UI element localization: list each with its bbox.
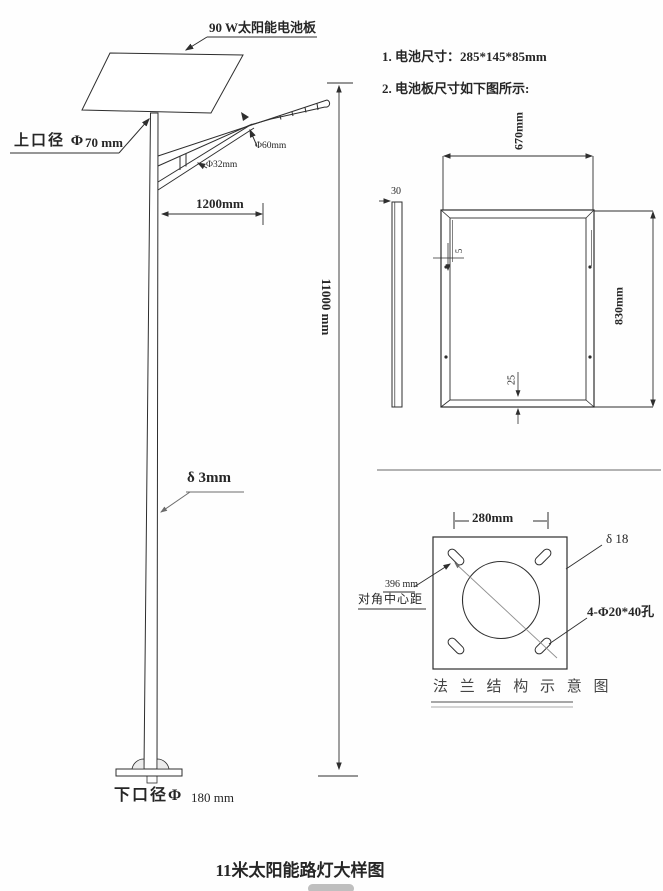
flange-caption: 法 兰 结 构 示 意 图 [433, 679, 613, 696]
flange-detail [358, 512, 602, 707]
panel-callout-leader [186, 37, 317, 50]
dim-11000 [318, 83, 358, 776]
wall-leader [161, 492, 244, 512]
caption-rules [431, 702, 573, 707]
flange-diag-label: 对角中心距 [358, 593, 423, 606]
top-dia-value: 70 mm [85, 136, 123, 150]
flange-thickness-label: δ 18 [606, 532, 628, 546]
panel-callout-label: 90 W太阳能电池板 [209, 21, 316, 35]
pole [144, 113, 158, 769]
drawing-linework [0, 0, 663, 891]
bottom-dia-label: 下口径Φ [114, 787, 183, 805]
panel-lip-dim: 5 [455, 249, 465, 254]
panel-side-view [379, 201, 402, 407]
panel-height-dim: 830mm [612, 287, 625, 325]
flange-holes-label: 4-Φ20*40孔 [587, 605, 654, 619]
panel-thickness-dim: 30 [391, 186, 401, 197]
solar-streetlight-drawing: 90 W太阳能电池板 上口径 Φ 70 mm Φ60mm Φ32mm 1200m… [0, 0, 663, 891]
arm-brace [158, 124, 254, 190]
panel-front-view [441, 210, 594, 407]
note-panel-size: 2. 电池板尺寸如下图所示: [382, 82, 529, 96]
solar-panel [82, 53, 243, 113]
bottom-dia-value: 180 mm [191, 791, 234, 805]
pole-height-label: 11000 mm [319, 279, 333, 336]
flange-spacing-dim: 280mm [472, 511, 513, 525]
flange-diag-value: 396 mm [385, 579, 418, 590]
arm-dia-label: Φ60mm [255, 141, 286, 151]
panel-bottom-lip-dim: 25 [507, 375, 518, 385]
panel-width-dim: 670mm [512, 112, 525, 150]
note-battery-size: 1. 电池尺寸：285*145*85mm [382, 50, 547, 64]
dim-670 [443, 156, 593, 212]
top-dia-label: 上口径 Φ [14, 133, 85, 150]
drawing-title: 11米太阳能路灯大样图 [215, 862, 384, 881]
wall-thickness-label: δ 3mm [187, 470, 231, 487]
brace-dia-label: Φ32mm [206, 160, 237, 170]
thickness-leader [566, 545, 602, 569]
arm-span-label: 1200mm [196, 197, 244, 211]
scan-artifact [308, 884, 354, 891]
